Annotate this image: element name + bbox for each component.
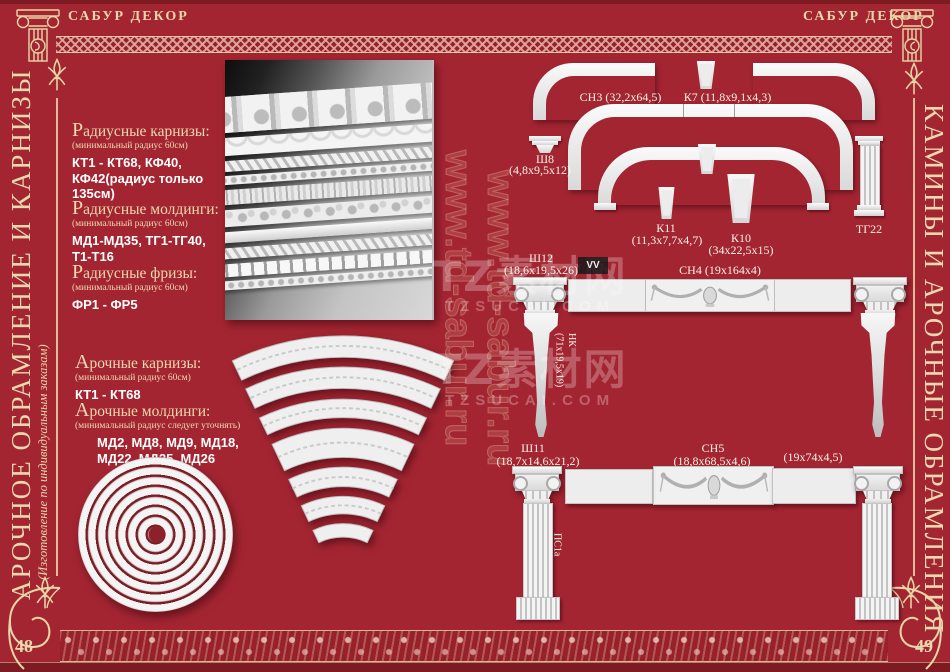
label-nk: НК (71х19,5х19) (552, 333, 577, 443)
label-k11-dims: (11,3х7,7х4,7) (626, 233, 708, 248)
page-number-right: 49 (906, 636, 942, 657)
capital-sh12-right (853, 277, 907, 315)
pilaster-ps1a-base-left (516, 597, 560, 620)
frieze-sn5 (653, 466, 774, 505)
label-ps-right-dims: (19х74х4,5) (774, 450, 852, 465)
radius-cornice-photo (225, 60, 434, 320)
capital-sh8-band (532, 141, 558, 145)
swag-relief (655, 467, 772, 504)
tg22-shaft (860, 145, 880, 207)
section-arched-cornices: Арочные карнизы: (минимальный радиус 60с… (75, 352, 240, 403)
pilaster-ps1a-shaft-left (523, 503, 553, 598)
right-title-rule (913, 98, 915, 576)
label-nk-dims: (71х19,5х19) (552, 333, 565, 443)
catalog-spread: САБУР ДЕКОР САБУР ДЕКОР АРОЧНОЕ ОБРАМЛЕН… (0, 0, 950, 672)
volute-icon (854, 476, 869, 491)
volute-icon (551, 287, 566, 302)
frieze-side-left (565, 469, 653, 504)
pilaster-base-right (855, 597, 899, 620)
section-heading: Радиусные фризы: (72, 262, 237, 283)
left-title-rule (56, 98, 58, 576)
section-radius-friezes: Радиусные фризы: (минимальный радиус 60с… (72, 262, 237, 313)
arch-segment-seam (683, 104, 684, 117)
page-number-left: 48 (6, 636, 42, 657)
column-capital-icon (14, 5, 62, 63)
pilaster-shaft-right (862, 503, 892, 598)
keystone-k7 (694, 61, 718, 89)
brand-title-left: САБУР ДЕКОР (68, 9, 189, 25)
section-codes: МД1-МД35, ТГ1-ТГ40, (72, 233, 237, 249)
section-note: (минимальный радиус 60см) (72, 141, 237, 151)
volute-icon (513, 476, 528, 491)
label-ps1a: ПС1а (550, 533, 563, 579)
label-k7: К7 (11,8х9,1х4,3) (670, 90, 785, 105)
left-page-subtitle: (Изготовление по индивидуальным заказам) (36, 108, 51, 580)
capital-sh12-left (513, 277, 567, 315)
label-sn3: СН3 (32,2х64,5) (558, 90, 683, 105)
volute-icon (854, 287, 869, 302)
section-heading: Радиусные карнизы: (72, 120, 237, 141)
section-radius-cornices: Радиусные карнизы: (минимальный радиус 6… (72, 120, 237, 202)
volute-icon (891, 287, 906, 302)
label-tg22: ТГ22 (846, 222, 892, 237)
label-sh8-dims: (4,8х9,5х12) (498, 163, 582, 178)
volute-icon (514, 287, 529, 302)
section-radius-moldings: Радиусные молдинги: (минимальный радиус … (72, 198, 237, 264)
section-codes: КТ1 - КТ68, КФ40, (72, 155, 237, 171)
scroll-ornament (2, 584, 66, 670)
arch-foot-right (807, 203, 829, 210)
section-codes: ФР1 - ФР5 (72, 297, 237, 313)
top-edge-strip (0, 0, 950, 4)
section-note: (минимальный радиус 60см) (75, 373, 240, 383)
section-note: (минимальный радиус 60см) (72, 219, 237, 229)
label-k10-dims: (34х22,5х15) (704, 243, 778, 258)
corbel-nk-right (860, 313, 896, 437)
frieze-sn5-plaque (655, 467, 772, 504)
arched-moldings-fan-photo (228, 328, 458, 544)
watermark-vv-logo: VV (578, 257, 608, 274)
round-molding-rings-photo (78, 457, 233, 612)
left-page-title: АРОЧНОЕ ОБРАМЛЕНИЕ И КАРНИЗЫ (6, 94, 37, 600)
section-note: (минимальный радиус 60см) (72, 283, 237, 293)
top-ornament-band (56, 36, 892, 53)
swag-relief (646, 280, 774, 311)
tg22-plinth (854, 210, 884, 216)
volute-icon (887, 476, 902, 491)
bottom-ornament-band (60, 630, 888, 662)
frieze-sn4-plaque (645, 280, 775, 311)
capital-sh11-right (853, 466, 903, 504)
arch-segment-seam (734, 104, 735, 117)
label-sh12-dims: (18,6х19,5х26) (492, 263, 590, 278)
cornice-strips (225, 82, 434, 320)
arch-foot-left (594, 203, 616, 210)
section-heading: Арочные карнизы: (75, 352, 240, 373)
right-page-title: КАМИНЫ И АРОЧНЫЕ ОБРАМЛЕНИЯ (918, 104, 949, 624)
volute-icon (546, 476, 561, 491)
brand-title-right: САБУР ДЕКОР (803, 9, 924, 25)
frieze-side-right (772, 468, 856, 504)
label-nk-code: НК (565, 333, 578, 443)
bottom-edge-strip (0, 662, 950, 672)
frieze-sn4 (568, 279, 851, 312)
label-sn4: СН4 (19х164х4) (664, 263, 776, 278)
section-heading: Радиусные молдинги: (72, 198, 237, 219)
fleur-icon (903, 62, 925, 96)
capital-sh11-left (512, 466, 562, 504)
fleur-icon (46, 58, 68, 92)
